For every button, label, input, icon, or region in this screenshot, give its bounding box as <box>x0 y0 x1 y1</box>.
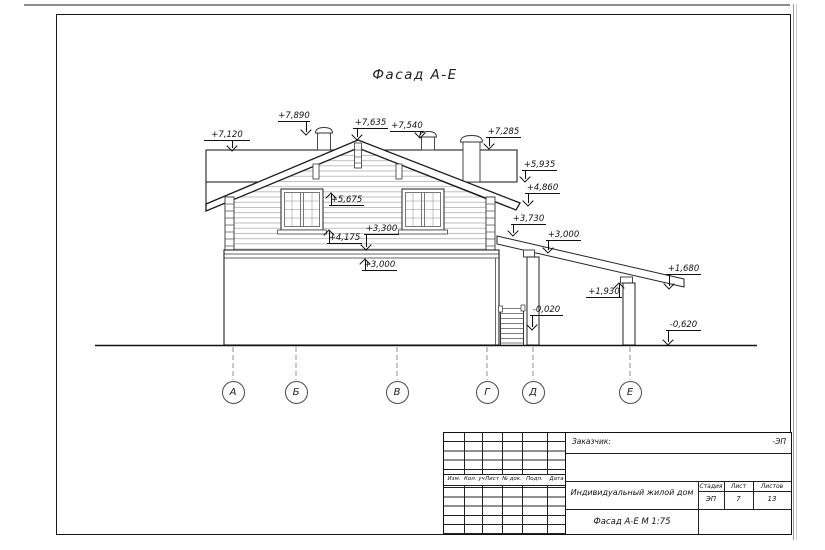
elevation-mark-value: +1,680 <box>666 264 701 274</box>
axis-bubble-4: Г <box>476 381 499 404</box>
axis-dash-lines <box>233 347 630 380</box>
customer-value: -ЭП <box>772 437 786 446</box>
col-kol: Кол. уч <box>464 475 482 484</box>
elevation-mark-shelf <box>511 224 546 225</box>
elevation-mark-shelf <box>666 274 701 275</box>
elevation-mark-shelf <box>530 315 563 316</box>
elevation-mark-value: -0,620 <box>666 320 701 330</box>
col-list: Лист <box>482 475 502 484</box>
elevation-mark-value: +7,120 <box>204 130 250 140</box>
elevation-mark-shelf <box>666 330 701 331</box>
sheets-total: 13 <box>753 495 791 503</box>
tb-line <box>566 453 791 454</box>
stairs <box>499 305 526 345</box>
chimney-1 <box>316 128 333 151</box>
elevation-mark-value: +7,285 <box>486 127 521 137</box>
elevation-mark-shelf <box>327 243 362 244</box>
corner-board-left <box>225 197 234 250</box>
elevation-mark-shelf <box>364 234 399 235</box>
gable-post-left <box>313 164 319 179</box>
stage-value: ЭП <box>698 495 724 503</box>
sheet-label: Лист <box>724 483 753 490</box>
sheet-title: Фасад А-Е М 1:75 <box>566 517 698 527</box>
elevation-mark-shelf <box>586 297 622 298</box>
sheets-label: Листов <box>753 483 791 490</box>
ridge-post <box>355 143 362 168</box>
elevation-mark-shelf <box>546 240 581 241</box>
porch-beam <box>497 236 684 287</box>
gable-post-right <box>396 164 402 179</box>
chimney-3 <box>461 136 483 183</box>
elevation-mark-value: +7,635 <box>353 118 388 128</box>
elevation-mark-shelf <box>353 128 388 129</box>
corner-board-right <box>486 197 495 253</box>
elevation-mark-value: +5,935 <box>522 160 557 170</box>
elevation-mark-value: +3,000 <box>546 230 581 240</box>
col-izm: Изм. <box>444 475 464 484</box>
customer-label: Заказчик: <box>572 437 611 446</box>
title-block-revision-table: Изм. Кол. уч Лист № док. Подп. Дата <box>443 432 567 535</box>
drawing-sheet: Фасад А-Е <box>0 0 825 550</box>
tb-line <box>698 491 791 492</box>
elevation-mark-shelf <box>329 205 364 206</box>
title-block-main: Заказчик: -ЭП Индивидуальный жилой дом Ф… <box>565 432 792 535</box>
elevation-mark-shelf <box>522 170 557 171</box>
window-1 <box>278 189 327 234</box>
elevation-mark-value: +3,300 <box>364 224 399 234</box>
elevation-mark-value: +4,860 <box>525 183 560 193</box>
elevation-mark-shelf <box>486 137 521 138</box>
axis-bubble-6: Е <box>619 381 642 404</box>
window-2 <box>399 189 448 234</box>
elevation-mark-value: +7,890 <box>278 111 310 121</box>
elevation-mark-shelf <box>525 193 560 194</box>
axis-bubble-2: Б <box>285 381 308 404</box>
elevation-mark-value: -0,020 <box>530 305 563 315</box>
axis-bubble-3: В <box>386 381 409 404</box>
tb-line <box>566 509 791 510</box>
stage-label: Стадия <box>698 483 724 490</box>
axis-bubble-5: Д <box>522 381 545 404</box>
elevation-mark-shelf <box>362 270 397 271</box>
col-data: Дата <box>547 475 566 484</box>
col-podp: Подп. <box>522 475 547 484</box>
sheet-number: 7 <box>724 495 753 503</box>
elevation-mark-value: +3,730 <box>511 214 546 224</box>
col-doc: № док. <box>502 475 522 484</box>
axis-bubble-1: А <box>222 381 245 404</box>
elevation-mark-shelf <box>204 140 250 141</box>
project-name: Индивидуальный жилой дом <box>566 488 698 497</box>
